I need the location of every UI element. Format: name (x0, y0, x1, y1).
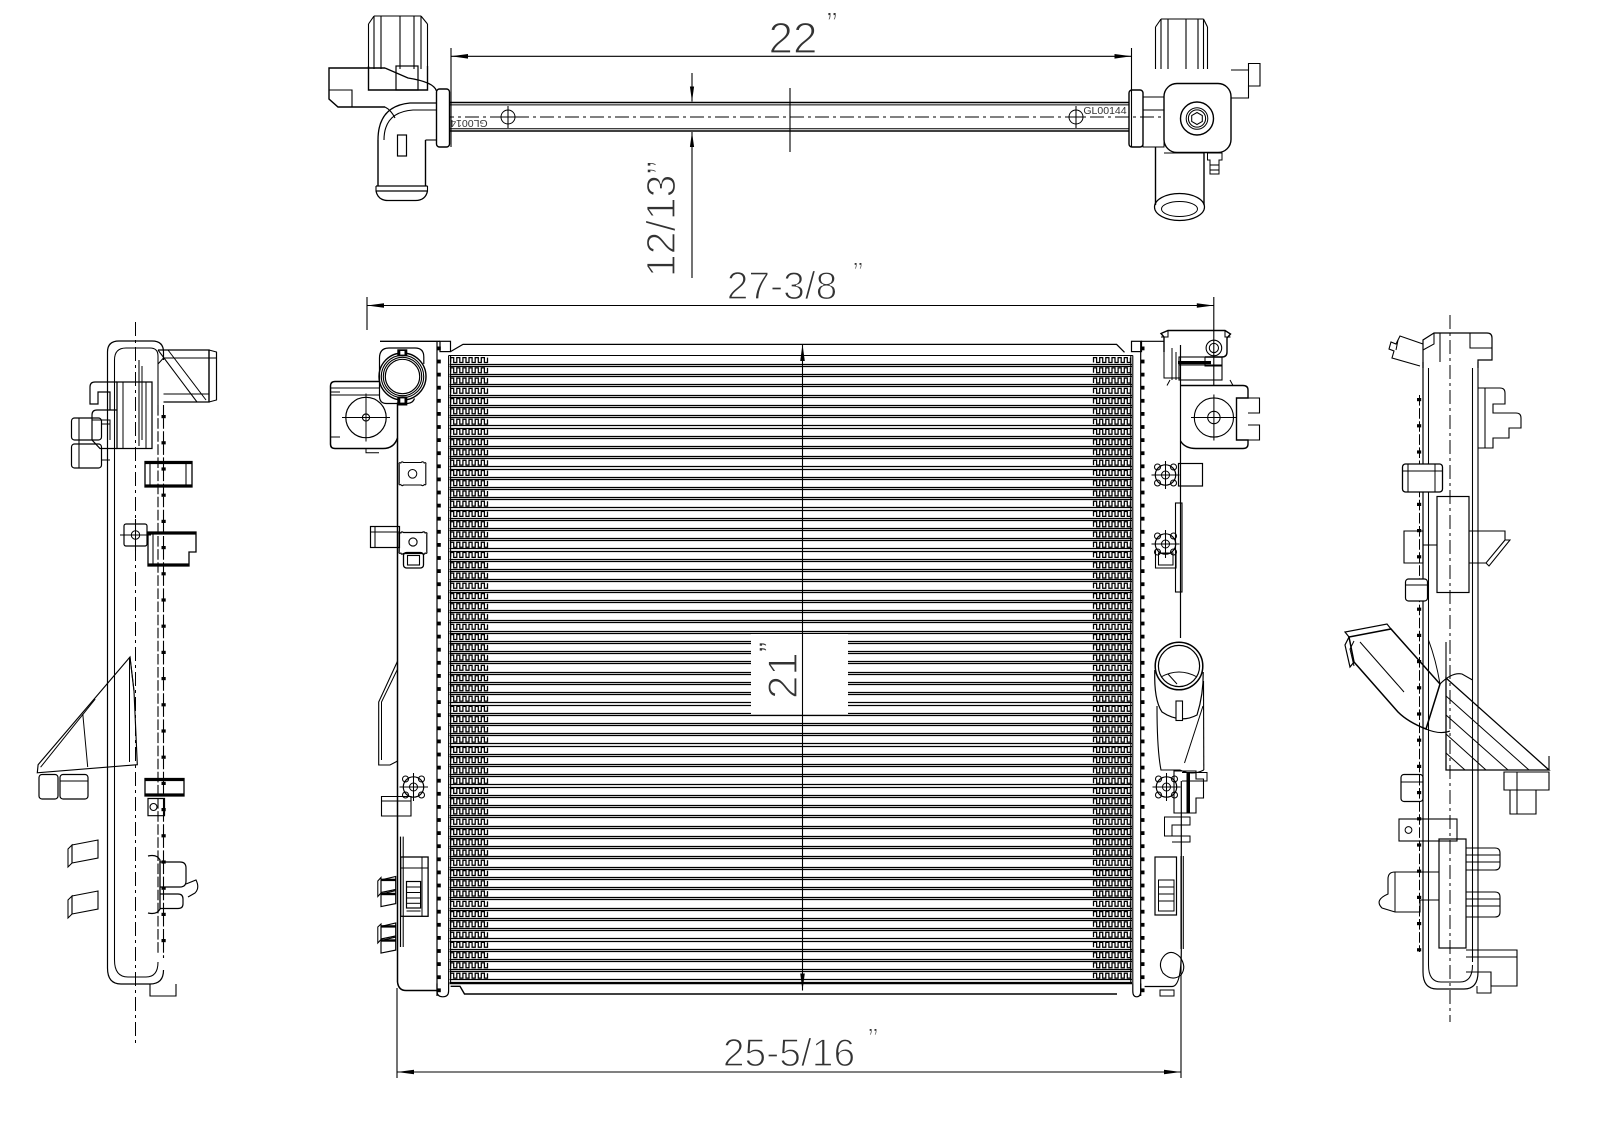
svg-text:27-3/8: 27-3/8 (727, 265, 838, 308)
svg-text:GL00144: GL00144 (1083, 105, 1126, 117)
svg-text:”: ” (868, 1023, 878, 1056)
svg-text:25-5/16: 25-5/16 (723, 1032, 855, 1075)
svg-text:22: 22 (769, 14, 818, 63)
svg-text:”: ” (827, 6, 838, 42)
svg-text:”: ” (853, 257, 863, 290)
svg-text:12/13”: 12/13” (638, 161, 684, 277)
svg-text:21: 21 (759, 652, 806, 699)
svg-text:”: ” (754, 642, 787, 652)
